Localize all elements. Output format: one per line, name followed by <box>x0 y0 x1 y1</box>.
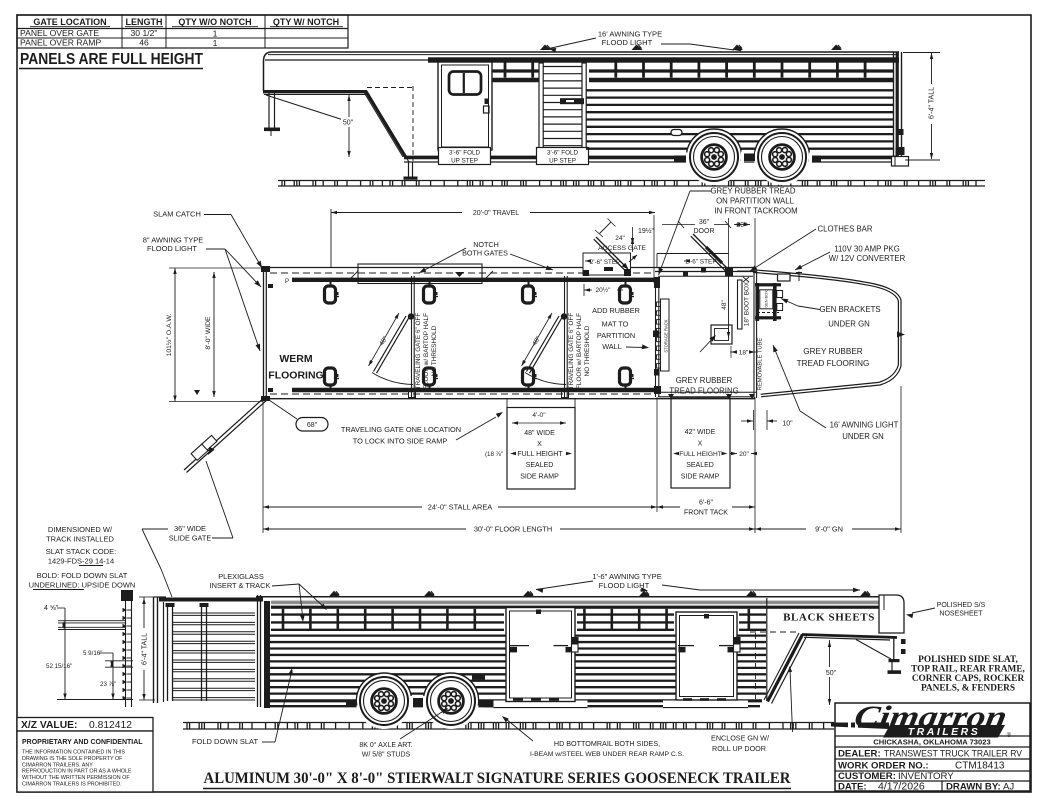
svg-text:2'-6" STEP: 2'-6" STEP <box>685 259 716 266</box>
svg-text:LENGTH: LENGTH <box>126 17 163 27</box>
svg-text:48": 48" <box>721 300 728 310</box>
svg-text:SLAT STACK CODE:: SLAT STACK CODE: <box>46 547 116 556</box>
svg-text:BOTH GATES: BOTH GATES <box>462 249 508 258</box>
svg-text:16' AWNING LIGHT: 16' AWNING LIGHT <box>830 421 899 430</box>
svg-text:UNDERLINED: UPSIDE DOWN: UNDERLINED: UPSIDE DOWN <box>29 581 136 590</box>
svg-text:THE INFORMATION CONTAINED IN T: THE INFORMATION CONTAINED IN THIS <box>22 750 125 756</box>
svg-text:DEALER:: DEALER: <box>838 749 881 760</box>
svg-text:SEALED: SEALED <box>526 462 554 469</box>
svg-text:4 ⅝": 4 ⅝" <box>44 605 59 612</box>
svg-text:BLACK SHEETS: BLACK SHEETS <box>783 612 875 624</box>
svg-text:BOLD: FOLD DOWN SLAT: BOLD: FOLD DOWN SLAT <box>37 571 128 580</box>
svg-text:TRANSWEST TRUCK TRAILER RV: TRANSWEST TRUCK TRAILER RV <box>884 749 1023 759</box>
svg-text:5 9/16": 5 9/16" <box>83 650 102 657</box>
svg-text:NO THRESHOLD: NO THRESHOLD <box>584 325 591 376</box>
svg-text:(18 ⅞": (18 ⅞" <box>485 451 503 458</box>
svg-text:TRACK INSTALLED: TRACK INSTALLED <box>46 535 114 544</box>
svg-text:TRAVELING GATE ONE LOCATION: TRAVELING GATE ONE LOCATION <box>341 425 461 434</box>
svg-text:X: X <box>537 441 542 448</box>
svg-text:4'-0": 4'-0" <box>532 412 546 419</box>
svg-text:ROLL UP DOOR: ROLL UP DOOR <box>712 744 766 753</box>
svg-text:FULL HEIGHT: FULL HEIGHT <box>679 451 722 458</box>
svg-text:UP STEP: UP STEP <box>549 158 576 165</box>
svg-text:CIMARRON TRAILERS. ANY: CIMARRON TRAILERS. ANY <box>22 762 93 768</box>
svg-text:FRONT TACK: FRONT TACK <box>684 510 728 517</box>
svg-text:DRAWING IS THE SOLE PROPERTY O: DRAWING IS THE SOLE PROPERTY OF <box>22 756 123 762</box>
svg-text:®: ® <box>1007 732 1012 739</box>
svg-text:68": 68" <box>307 422 318 429</box>
svg-text:GEN BOX: GEN BOX <box>765 290 769 308</box>
svg-text:SIDE RAMP: SIDE RAMP <box>520 474 559 481</box>
svg-text:52 15/16": 52 15/16" <box>46 663 72 670</box>
svg-text:30 1/2": 30 1/2" <box>131 28 158 38</box>
svg-text:NO THRESHOLD: NO THRESHOLD <box>431 325 438 376</box>
svg-text:36": 36" <box>699 219 710 226</box>
svg-text:WERM: WERM <box>279 353 312 365</box>
svg-text:DATE:: DATE: <box>838 782 867 793</box>
svg-text:SEALED: SEALED <box>686 462 714 469</box>
svg-text:GREY RUBBER: GREY RUBBER <box>803 347 863 356</box>
svg-text:ADD RUBBER: ADD RUBBER <box>592 306 640 315</box>
svg-text:8'-0" WIDE: 8'-0" WIDE <box>205 316 212 350</box>
svg-text:42" WIDE: 42" WIDE <box>685 429 716 436</box>
svg-text:REMOVABLE TUBE: REMOVABLE TUBE <box>758 338 764 391</box>
svg-text:X/Z VALUE:: X/Z VALUE: <box>21 720 77 731</box>
svg-text:6'-4" TALL: 6'-4" TALL <box>929 87 936 119</box>
svg-text:FOLD DOWN SLAT: FOLD DOWN SLAT <box>192 737 259 746</box>
svg-text:19½": 19½" <box>638 227 655 235</box>
svg-text:FLOOD LIGHT: FLOOD LIGHT <box>147 244 197 253</box>
svg-text:STORAGE RACK: STORAGE RACK <box>664 319 669 352</box>
svg-text:1: 1 <box>213 38 218 48</box>
svg-text:3'-6" FOLD: 3'-6" FOLD <box>547 150 579 157</box>
svg-text:10": 10" <box>782 421 793 428</box>
svg-text:GREY RUBBER: GREY RUBBER <box>676 376 733 385</box>
svg-text:W/ 12V CONVERTER: W/ 12V CONVERTER <box>829 254 906 263</box>
svg-text:DIMENSIONED W/: DIMENSIONED W/ <box>48 525 113 534</box>
svg-text:TRAILERS: TRAILERS <box>908 726 981 738</box>
svg-text:W/ 5/8" STUDS: W/ 5/8" STUDS <box>362 752 411 759</box>
svg-text:FULL HEIGHT: FULL HEIGHT <box>517 451 563 458</box>
svg-text:UNDER GN: UNDER GN <box>842 432 884 441</box>
svg-text:ENCLOSE GN W/: ENCLOSE GN W/ <box>711 734 769 743</box>
svg-text:DOOR: DOOR <box>694 228 715 235</box>
svg-text:2'-6" STEP: 2'-6" STEP <box>590 259 620 266</box>
svg-text:QTY W/ NOTCH: QTY W/ NOTCH <box>273 17 339 27</box>
svg-text:46: 46 <box>139 38 149 48</box>
svg-text:FLOORING: FLOORING <box>268 370 323 382</box>
svg-text:36" WIDE: 36" WIDE <box>174 524 206 533</box>
svg-text:QTY W/O NOTCH: QTY W/O NOTCH <box>178 17 251 27</box>
svg-text:48" WIDE: 48" WIDE <box>524 430 555 437</box>
svg-text:FLOOD LIGHT: FLOOD LIGHT <box>602 38 653 47</box>
svg-text:UNDER GN: UNDER GN <box>828 320 870 329</box>
svg-text:PANELS ARE FULL HEIGHT: PANELS ARE FULL HEIGHT <box>20 51 203 68</box>
svg-text:ON PARTITION WALL: ON PARTITION WALL <box>716 197 794 206</box>
svg-text:20": 20" <box>739 451 749 458</box>
svg-text:PARTITION: PARTITION <box>597 331 635 340</box>
svg-text:SIDE RAMP: SIDE RAMP <box>681 474 720 481</box>
svg-text:24": 24" <box>615 235 625 242</box>
svg-text:50": 50" <box>826 670 837 677</box>
svg-text:110V 30 AMP PKG: 110V 30 AMP PKG <box>834 245 900 254</box>
svg-text:CLOTHES BAR: CLOTHES BAR <box>817 225 872 234</box>
svg-text:1: 1 <box>213 29 218 39</box>
svg-text:REPRODUCTION IN PART OR AS A W: REPRODUCTION IN PART OR AS A WHOLE <box>22 769 132 775</box>
svg-text:CIMARRON TRAILERS IS PROHIBITE: CIMARRON TRAILERS IS PROHIBITED. <box>22 782 122 788</box>
svg-text:ACCESS GATE: ACCESS GATE <box>598 245 646 252</box>
svg-text:0.812412: 0.812412 <box>89 720 132 731</box>
svg-text:3'-6" FOLD: 3'-6" FOLD <box>449 150 481 157</box>
svg-text:GEN BRACKETS: GEN BRACKETS <box>819 305 880 314</box>
svg-text:1429-FDS-29 14-14: 1429-FDS-29 14-14 <box>48 557 114 566</box>
svg-text:8K 0° AXLE ART.: 8K 0° AXLE ART. <box>359 741 412 749</box>
svg-text:18" BOOT BOX: 18" BOOT BOX <box>744 281 751 326</box>
svg-text:PANEL OVER RAMP: PANEL OVER RAMP <box>20 38 101 48</box>
svg-text:PANELS, & FENDERS: PANELS, & FENDERS <box>921 684 1015 694</box>
svg-text:CHICKASHA, OKLAHOMA 73023: CHICKASHA, OKLAHOMA 73023 <box>873 738 990 747</box>
svg-text:TOP RAIL, REAR FRAME,: TOP RAIL, REAR FRAME, <box>911 665 1025 675</box>
svg-text:CTM18413: CTM18413 <box>955 761 1005 772</box>
svg-text:4/17/2026: 4/17/2026 <box>878 781 925 793</box>
svg-text:UP STEP: UP STEP <box>451 158 478 165</box>
svg-text:24'-0" STALL AREA: 24'-0" STALL AREA <box>428 503 492 512</box>
svg-text:NOSESHEET: NOSESHEET <box>939 611 983 618</box>
svg-text:WITHOUT THE WRITTEN PERMISSION: WITHOUT THE WRITTEN PERMISSION OF <box>22 775 130 781</box>
svg-text:TO LOCK INTO SIDE RAMP: TO LOCK INTO SIDE RAMP <box>353 437 448 446</box>
svg-text:X: X <box>698 441 703 448</box>
svg-text:FLOOR w/ BARTOP HALF: FLOOR w/ BARTOP HALF <box>576 313 583 389</box>
svg-text:30'-0" FLOOR LENGTH: 30'-0" FLOOR LENGTH <box>474 525 552 534</box>
svg-text:TRAVELING GATE 6" OFF: TRAVELING GATE 6" OFF <box>415 313 422 390</box>
svg-text:PROPRIETARY AND CONFIDENTIAL: PROPRIETARY AND CONFIDENTIAL <box>22 739 143 746</box>
svg-text:SLAM CATCH: SLAM CATCH <box>153 210 201 219</box>
svg-text:101½" O.A.W.: 101½" O.A.W. <box>165 313 173 356</box>
svg-text:9'-0" GN: 9'-0" GN <box>815 525 843 534</box>
svg-text:DRAWN BY:: DRAWN BY: <box>946 782 1001 793</box>
svg-text:IN FRONT TACKROOM: IN FRONT TACKROOM <box>714 207 797 216</box>
svg-text:P: P <box>285 279 289 285</box>
svg-text:INSERT & TRACK: INSERT & TRACK <box>210 581 271 590</box>
svg-text:GREY RUBBER TREAD: GREY RUBBER TREAD <box>710 187 795 196</box>
svg-text:MAT TO: MAT TO <box>602 320 629 329</box>
svg-text:GATE LOCATION: GATE LOCATION <box>33 17 106 27</box>
svg-text:50": 50" <box>343 120 354 127</box>
svg-text:23 ⅞": 23 ⅞" <box>100 681 116 688</box>
svg-text:1'-6" AWNING TYPE: 1'-6" AWNING TYPE <box>592 572 662 581</box>
svg-text:HD BOTTOMRAIL BOTH SIDES,: HD BOTTOMRAIL BOTH SIDES, <box>554 739 660 748</box>
svg-text:ALUMINUM 30'-0" X 8'-0" STIERW: ALUMINUM 30'-0" X 8'-0" STIERWALT SIGNAT… <box>204 769 791 787</box>
svg-text:PLEXIGLASS: PLEXIGLASS <box>218 572 264 581</box>
svg-text:PANEL OVER GATE: PANEL OVER GATE <box>20 28 99 38</box>
svg-text:20½": 20½" <box>596 286 612 294</box>
svg-text:SLIDE GATE: SLIDE GATE <box>169 534 212 543</box>
svg-text:TREAD FLOORING: TREAD FLOORING <box>797 359 870 368</box>
svg-text:6'-6": 6'-6" <box>699 500 713 507</box>
svg-text:20'-0" TRAVEL: 20'-0" TRAVEL <box>473 210 519 217</box>
svg-text:AJ: AJ <box>1003 782 1014 793</box>
svg-text:CORNER CAPS, ROCKER: CORNER CAPS, ROCKER <box>912 674 1025 684</box>
svg-text:FLOOR w/ BARTOP HALF: FLOOR w/ BARTOP HALF <box>423 313 430 389</box>
svg-text:POLISHED SIDE SLAT,: POLISHED SIDE SLAT, <box>918 655 1018 665</box>
svg-text:18": 18" <box>739 350 749 357</box>
svg-text:WORK ORDER NO.:: WORK ORDER NO.: <box>838 761 929 772</box>
svg-text:I-BEAM w/STEEL WEB UNDER REAR: I-BEAM w/STEEL WEB UNDER REAR RAMP C.S. <box>530 751 684 758</box>
svg-text:WALL: WALL <box>602 342 622 351</box>
svg-text:POLISHED S/S: POLISHED S/S <box>937 602 986 609</box>
svg-text:6'-4" TALL: 6'-4" TALL <box>142 633 149 665</box>
svg-text:TRAVELING GATE 6" OFF: TRAVELING GATE 6" OFF <box>568 313 575 390</box>
